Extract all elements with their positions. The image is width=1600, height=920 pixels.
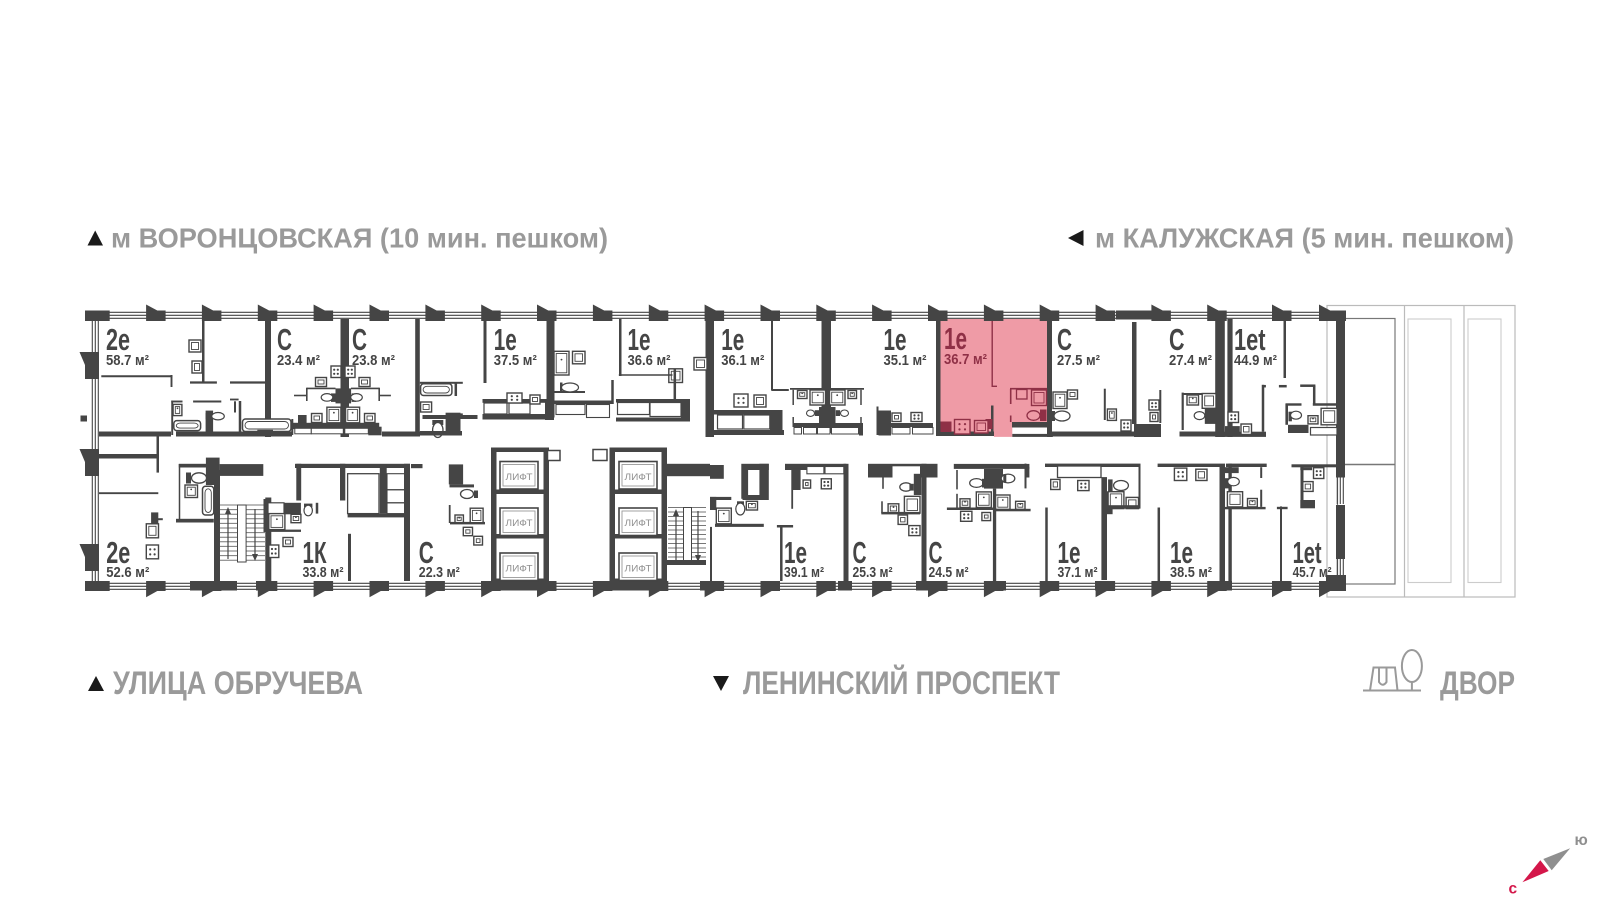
svg-text:23.8 м²: 23.8 м²: [352, 353, 395, 369]
svg-text:23.4 м²: 23.4 м²: [277, 353, 320, 369]
svg-text:м КАЛУЖСКАЯ (5 мин. пешком): м КАЛУЖСКАЯ (5 мин. пешком): [1095, 223, 1514, 254]
svg-text:1е: 1е: [884, 322, 907, 357]
svg-text:36.7 м²: 36.7 м²: [944, 352, 987, 368]
svg-text:22.3 м²: 22.3 м²: [419, 565, 460, 581]
svg-text:45.7 м²: 45.7 м²: [1293, 565, 1332, 581]
svg-text:27.5 м²: 27.5 м²: [1057, 353, 1100, 369]
svg-text:1е: 1е: [721, 322, 744, 357]
svg-text:ЛИФТ: ЛИФТ: [625, 564, 652, 575]
svg-text:м ВОРОНЦОВСКАЯ (10 мин. пешко: м ВОРОНЦОВСКАЯ (10 мин. пешком): [111, 223, 608, 254]
svg-text:2е: 2е: [106, 322, 130, 357]
svg-text:1е: 1е: [494, 322, 517, 357]
svg-text:25.3 м²: 25.3 м²: [853, 565, 893, 581]
svg-text:ЛИФТ: ЛИФТ: [625, 518, 652, 529]
svg-text:44.9 м²: 44.9 м²: [1234, 353, 1277, 369]
svg-text:УЛИЦА ОБРУЧЕВА: УЛИЦА ОБРУЧЕВА: [113, 665, 363, 701]
svg-text:ЛИФТ: ЛИФТ: [625, 472, 652, 483]
svg-text:с: с: [1509, 881, 1518, 898]
svg-text:ю: ю: [1575, 832, 1588, 849]
svg-text:27.4 м²: 27.4 м²: [1169, 353, 1212, 369]
svg-text:52.6 м²: 52.6 м²: [106, 565, 149, 581]
svg-text:36.1 м²: 36.1 м²: [721, 353, 764, 369]
svg-text:1е: 1е: [944, 321, 967, 356]
svg-text:ЛИФТ: ЛИФТ: [506, 472, 533, 483]
svg-text:1еt: 1еt: [1234, 322, 1266, 357]
svg-text:39.1 м²: 39.1 м²: [784, 565, 824, 581]
svg-text:ЛИФТ: ЛИФТ: [506, 564, 533, 575]
svg-text:ДВОР: ДВОР: [1440, 665, 1515, 701]
svg-text:ЛЕНИНСКИЙ ПРОСПЕКТ: ЛЕНИНСКИЙ ПРОСПЕКТ: [743, 665, 1060, 701]
svg-text:С: С: [352, 322, 367, 357]
svg-text:38.5 м²: 38.5 м²: [1170, 565, 1212, 581]
svg-text:36.6 м²: 36.6 м²: [628, 353, 671, 369]
svg-text:35.1 м²: 35.1 м²: [884, 353, 927, 369]
svg-text:ЛИФТ: ЛИФТ: [506, 518, 533, 529]
svg-text:С: С: [1057, 322, 1072, 357]
svg-text:С: С: [277, 322, 292, 357]
svg-text:С: С: [1169, 322, 1185, 357]
svg-text:37.5 м²: 37.5 м²: [494, 353, 537, 369]
svg-text:1е: 1е: [628, 322, 651, 357]
svg-text:33.8 м²: 33.8 м²: [303, 565, 344, 581]
svg-text:58.7 м²: 58.7 м²: [106, 353, 149, 369]
svg-text:24.5 м²: 24.5 м²: [929, 565, 969, 581]
svg-text:37.1 м²: 37.1 м²: [1058, 565, 1098, 581]
